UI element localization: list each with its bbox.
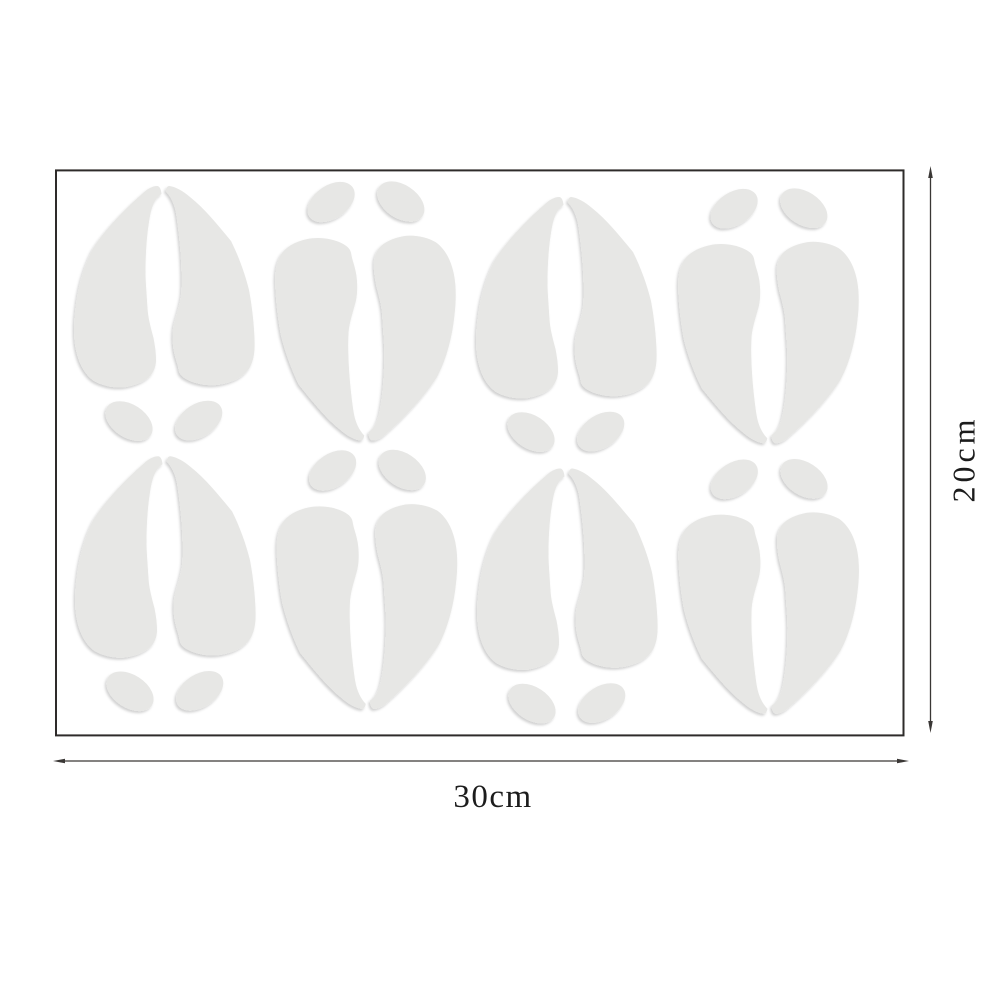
svg-text:30cm: 30cm — [453, 779, 532, 815]
svg-text:20cm: 20cm — [946, 415, 982, 502]
